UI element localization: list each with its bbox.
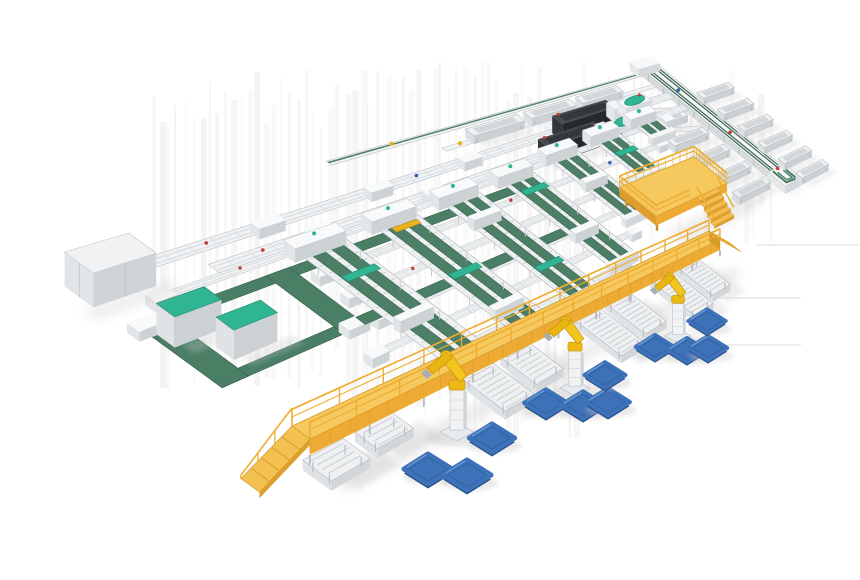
- pallet-panel-7: [584, 362, 632, 391]
- conveyor-system-illustration: [0, 0, 860, 580]
- factory-line-render: [0, 0, 860, 580]
